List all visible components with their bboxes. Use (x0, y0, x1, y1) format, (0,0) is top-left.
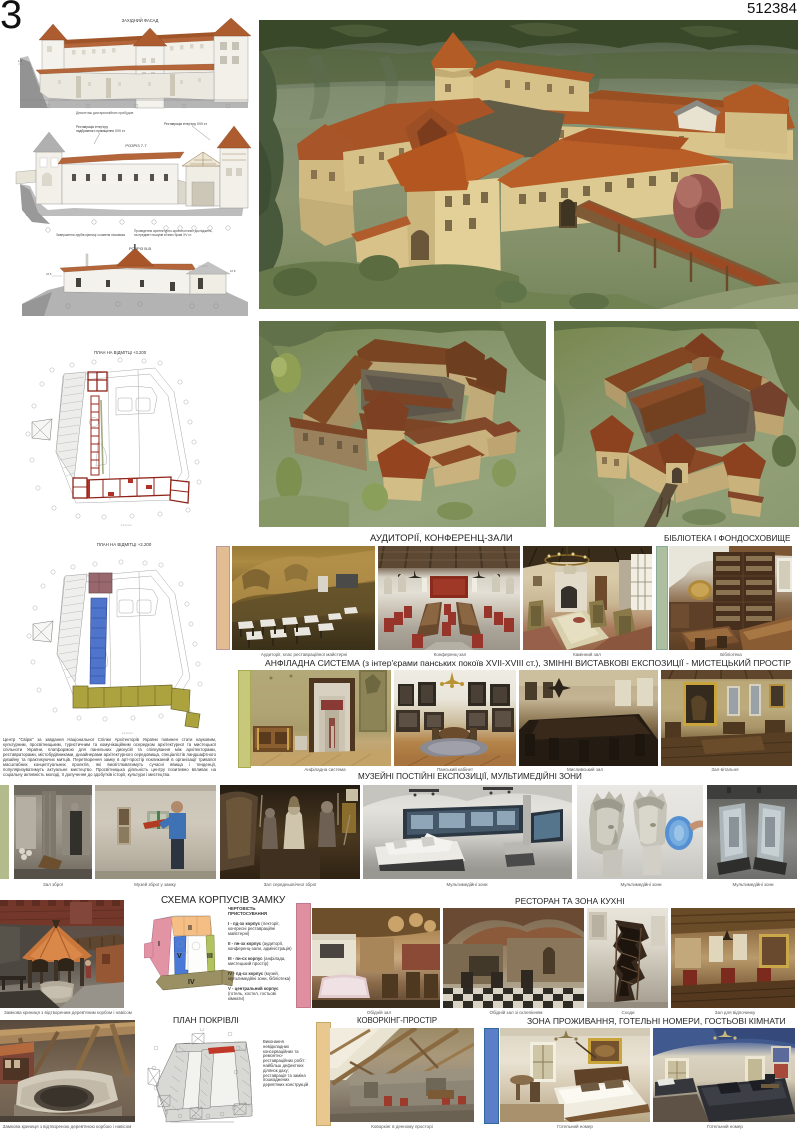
svg-text:▪ ▪ ▪ ▪ ▪ ▪: ▪ ▪ ▪ ▪ ▪ ▪ (121, 523, 132, 527)
svg-text:II: II (188, 925, 192, 932)
svg-text:Демонтаж дисгармонійних прибуд: Демонтаж дисгармонійних прибудов (76, 111, 133, 115)
svg-text:РОЗРІЗ В-В: РОЗРІЗ В-В (129, 246, 151, 251)
svg-text:IV: IV (188, 979, 195, 986)
svg-text:на предмет пошуків в'їзних бра: на предмет пошуків в'їзних брам XV ст. (134, 233, 192, 237)
svg-text:ПЛАН НА ВІДМІТЦІ +2.200: ПЛАН НА ВІДМІТЦІ +2.200 (97, 542, 152, 547)
svg-text:16,8: 16,8 (230, 269, 236, 273)
svg-text:III: III (207, 953, 213, 960)
svg-text:РОЗРІЗ 7-7: РОЗРІЗ 7-7 (125, 143, 147, 148)
svg-text:1,5: 1,5 (18, 59, 22, 63)
svg-text:ПЛАН НА ВІДМІТЦІ +3.200: ПЛАН НА ВІДМІТЦІ +3.200 (94, 350, 147, 355)
svg-text:надбрамного приміщення XVII ст: надбрамного приміщення XVII ст. (76, 129, 126, 133)
svg-text:▪ ▪ ▪ ▪ ▪ ▪: ▪ ▪ ▪ ▪ ▪ ▪ (122, 731, 133, 735)
svg-text:ЗАХІДНИЙ ФАСАД: ЗАХІДНИЙ ФАСАД (122, 18, 159, 23)
svg-text:V: V (177, 953, 182, 960)
svg-text:Реставрація інтер'єру XVII ст.: Реставрація інтер'єру XVII ст. (164, 122, 207, 126)
svg-text:24,5: 24,5 (46, 272, 52, 276)
svg-text:I: I (158, 941, 160, 948)
svg-text:Завершення зрубів криниці з ка: Завершення зрубів криниці з каменя піско… (56, 233, 125, 237)
